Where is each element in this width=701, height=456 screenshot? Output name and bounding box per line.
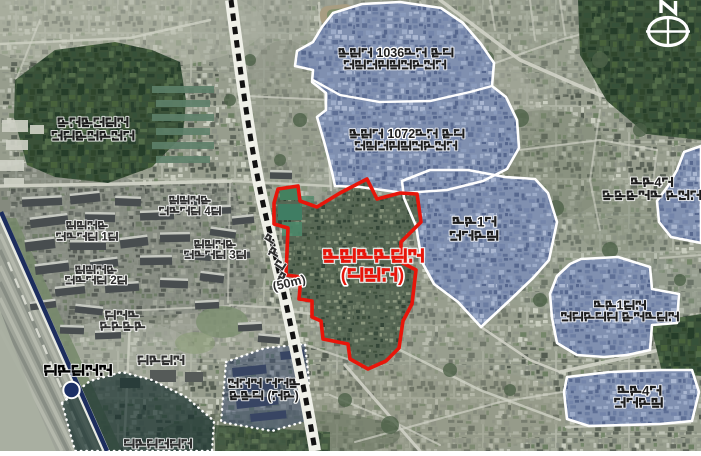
svg-text:3: 3 — [229, 250, 235, 262]
svg-text:2: 2 — [110, 275, 116, 287]
svg-text:1072: 1072 — [387, 127, 415, 141]
svg-text:4: 4 — [654, 175, 662, 190]
svg-text:4: 4 — [204, 206, 211, 218]
svg-text:(: ( — [341, 264, 348, 285]
svg-text:): ) — [295, 389, 299, 403]
svg-text:1: 1 — [617, 299, 624, 313]
svg-text:4: 4 — [642, 383, 650, 398]
svg-text:1: 1 — [477, 214, 485, 229]
svg-text:): ) — [398, 264, 404, 285]
svg-text:1036: 1036 — [376, 46, 404, 60]
svg-text:1: 1 — [101, 232, 108, 244]
